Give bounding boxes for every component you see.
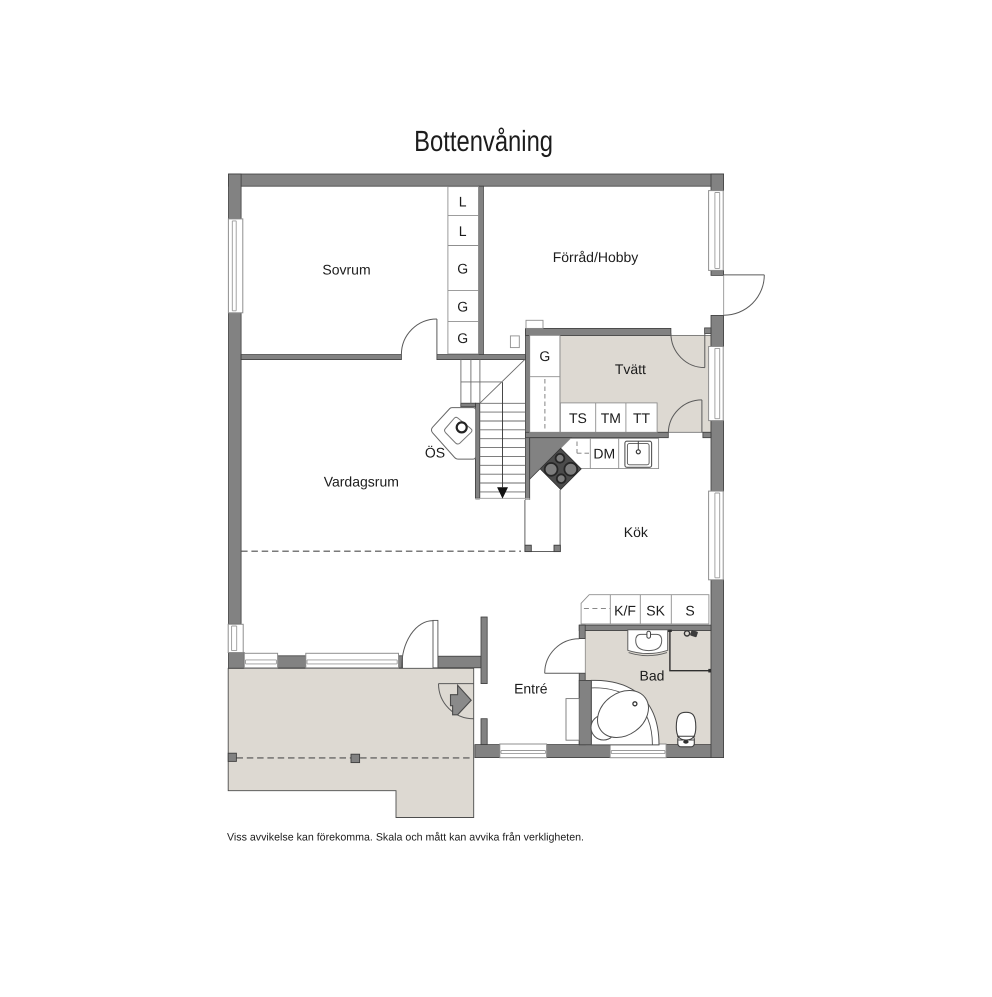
svg-text:L: L [459, 223, 467, 239]
svg-text:Sovrum: Sovrum [322, 262, 370, 278]
svg-text:L: L [459, 194, 467, 210]
svg-text:K/F: K/F [614, 602, 636, 618]
svg-text:ÖS: ÖS [425, 445, 445, 461]
svg-text:G: G [457, 330, 468, 346]
svg-text:Entré: Entré [514, 680, 548, 696]
svg-text:G: G [457, 261, 468, 277]
svg-text:Viss avvikelse kan förekomma.: Viss avvikelse kan förekomma. Skala och … [227, 832, 584, 844]
svg-text:Kök: Kök [624, 524, 649, 540]
svg-text:Bad: Bad [640, 668, 665, 684]
svg-text:S: S [685, 602, 694, 618]
svg-text:SK: SK [646, 603, 665, 619]
svg-text:DM: DM [593, 445, 615, 461]
svg-text:TT: TT [633, 410, 651, 426]
svg-text:Förråd/Hobby: Förråd/Hobby [553, 249, 639, 265]
svg-text:TS: TS [569, 410, 587, 426]
svg-text:Tvätt: Tvätt [615, 361, 646, 377]
svg-text:Bottenvåning: Bottenvåning [414, 126, 553, 158]
svg-text:TM: TM [601, 410, 621, 426]
svg-text:G: G [457, 299, 468, 315]
svg-text:Vardagsrum: Vardagsrum [324, 473, 399, 489]
svg-text:G: G [539, 348, 550, 364]
